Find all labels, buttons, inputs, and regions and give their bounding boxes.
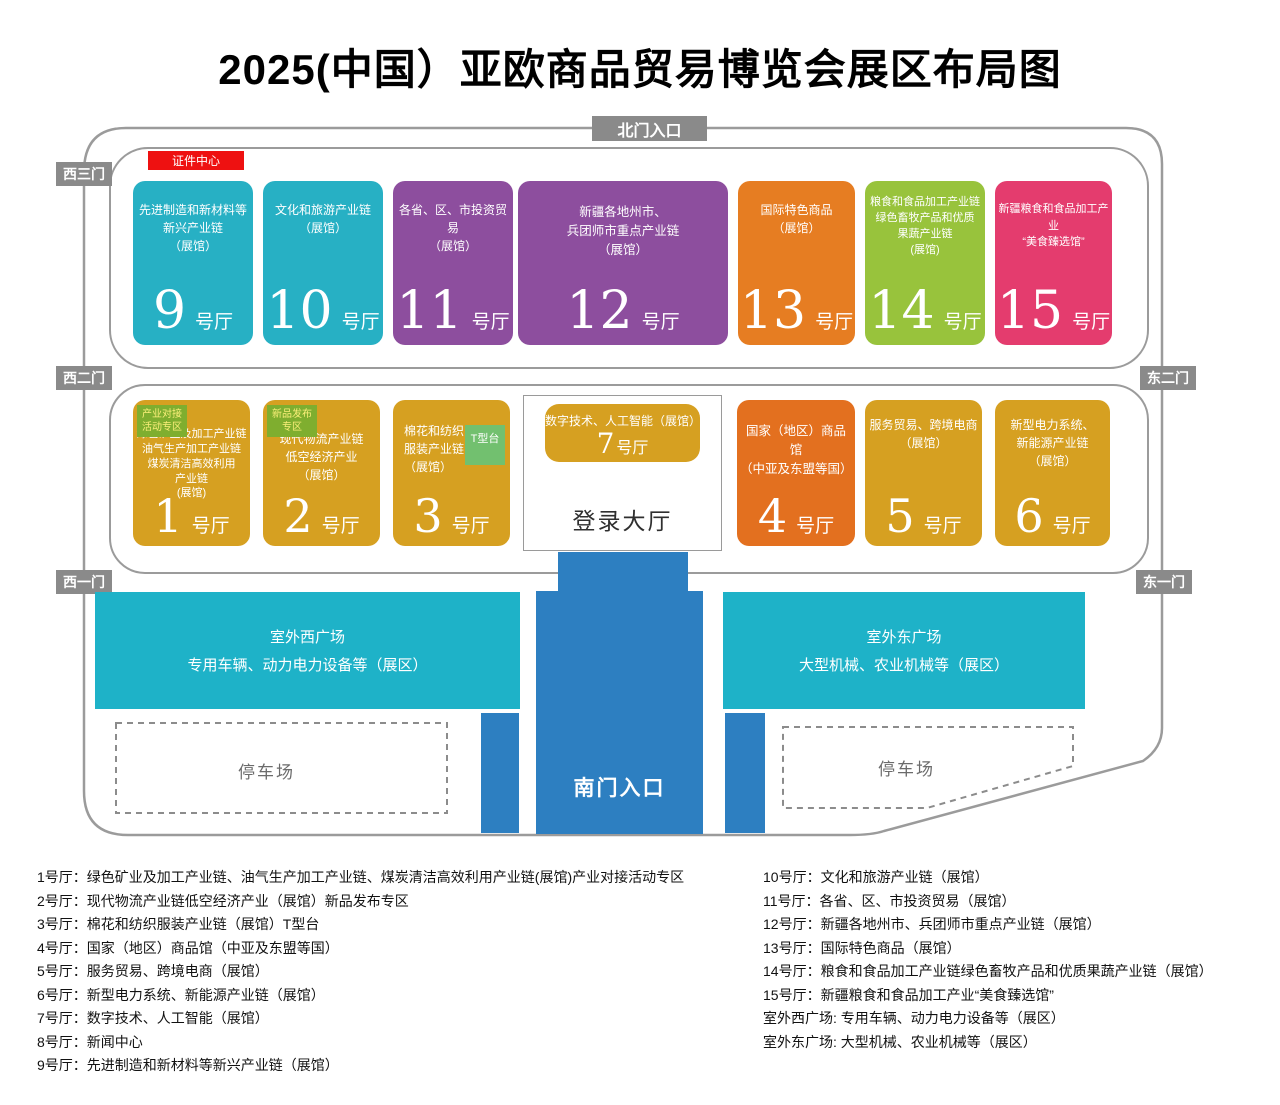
- hall-6-desc: 新型电力系统、 新能源产业链 （展馆）: [995, 400, 1110, 470]
- hall-9: 先进制造和新材料等 新兴产业链 （展馆） 9号厅: [133, 181, 253, 345]
- hall-6-unit: 号厅: [1053, 516, 1091, 537]
- hall-1: 产业对接 活动专区 绿色矿业及加工产业链 油气生产加工产业链 煤炭清洁高效利用 …: [133, 400, 250, 546]
- legend-item: 2号厅：现代物流产业链低空经济产业（展馆）新品发布专区: [37, 890, 759, 914]
- hall-12-number: 12号厅: [518, 285, 728, 337]
- hall-2-new-product-badge: 新品发布 专区: [267, 405, 317, 437]
- hall-1-number: 1号厅: [133, 493, 250, 539]
- hall-6: 新型电力系统、 新能源产业链 （展馆） 6号厅: [995, 400, 1110, 546]
- legend-item: 1号厅：绿色矿业及加工产业链、油气生产加工产业链、煤炭清洁高效利用产业链(展馆)…: [37, 866, 759, 890]
- hall-2-unit: 号厅: [322, 516, 360, 537]
- gate-west-1: 西一门: [56, 570, 112, 594]
- hall-14-desc: 粮食和食品加工产业链 绿色畜牧产品和优质 果蔬产业链 (展馆): [865, 181, 985, 259]
- hall-12: 新疆各地州市、 兵团师市重点产业链 （展馆） 12号厅: [518, 181, 728, 345]
- legend-item: 11号厅：各省、区、市投资贸易（展馆）: [763, 890, 1247, 914]
- hall-11: 各省、区、市投资贸易 （展馆） 11号厅: [393, 181, 513, 345]
- hall-15-unit: 号厅: [1072, 312, 1110, 333]
- hall-1-unit: 号厅: [192, 516, 230, 537]
- gate-north-entrance: 北门入口: [592, 116, 707, 141]
- east-plaza-name: 室外东广场: [866, 626, 941, 647]
- hall-2-num: 2: [283, 489, 312, 543]
- west-plaza-desc: 专用车辆、动力电力设备等（展区）: [187, 654, 427, 675]
- hall-9-number: 9号厅: [133, 285, 253, 337]
- legend-item: 15号厅：新疆粮食和食品加工产业“美食臻选馆”: [763, 984, 1247, 1008]
- hall-3-number: 3号厅: [393, 493, 510, 539]
- hall-7-unit: 号厅: [616, 440, 648, 457]
- hall-12-num: 12: [566, 281, 632, 341]
- east-parking-label: 停车场: [878, 755, 935, 780]
- hall-5-num: 5: [885, 489, 914, 543]
- hall-4-number: 4号厅: [737, 493, 855, 539]
- hall-10-unit: 号厅: [342, 312, 380, 333]
- hall-7-desc: 数字技术、人工智能（展馆）: [545, 412, 700, 429]
- hall-7-num: 7: [597, 427, 615, 460]
- hall-1-activity-zone-badge: 产业对接 活动专区: [137, 405, 187, 437]
- hall-3: T型台 棉花和纺织 服装产业链 （展馆） 3号厅: [393, 400, 510, 546]
- hall-11-desc: 各省、区、市投资贸易 （展馆）: [393, 181, 513, 255]
- hall-14-unit: 号厅: [944, 312, 982, 333]
- west-corridor-strip: [481, 713, 519, 833]
- hall-9-unit: 号厅: [195, 312, 233, 333]
- credential-center-label: 证件中心: [148, 151, 244, 170]
- south-corridor-neck: [558, 552, 688, 591]
- hall-15-number: 15号厅: [995, 285, 1112, 337]
- gate-south-entrance: 南门入口: [536, 772, 703, 802]
- gate-west-2: 西二门: [56, 366, 112, 390]
- legend-item: 3号厅：棉花和纺织服装产业链（展馆）T型台: [37, 913, 759, 937]
- hall-15: 新疆粮食和食品加工产业 “美食臻选馆” 15号厅: [995, 181, 1112, 345]
- east-outdoor-plaza: 室外东广场 大型机械、农业机械等（展区）: [723, 592, 1085, 709]
- legend-right-column: 10号厅：文化和旅游产业链（展馆） 11号厅：各省、区、市投资贸易（展馆） 12…: [763, 866, 1247, 1054]
- hall-10: 文化和旅游产业链 （展馆） 10号厅: [263, 181, 383, 345]
- hall-4-desc: 国家（地区）商品馆 （中亚及东盟等国）: [737, 400, 855, 478]
- legend-item: 12号厅：新疆各地州市、兵团师市重点产业链（展馆）: [763, 913, 1247, 937]
- expo-layout-map: 2025(中国）亚欧商品贸易博览会展区布局图 北门入口 西三门 西二门 西一门 …: [0, 0, 1280, 1105]
- hall-7-number: 7号厅: [545, 430, 700, 458]
- legend-item: 5号厅：服务贸易、跨境电商（展馆）: [37, 960, 759, 984]
- east-corridor-strip: [725, 713, 765, 833]
- legend-left-column: 1号厅：绿色矿业及加工产业链、油气生产加工产业链、煤炭清洁高效利用产业链(展馆)…: [37, 866, 759, 1078]
- hall-4-unit: 号厅: [796, 516, 834, 537]
- hall-3-t-stage-badge: T型台: [465, 425, 505, 465]
- legend-item: 14号厅：粮食和食品加工产业链绿色畜牧产品和优质果蔬产业链（展馆）: [763, 960, 1247, 984]
- hall-11-number: 11号厅: [393, 285, 513, 337]
- east-plaza-desc: 大型机械、农业机械等（展区）: [799, 654, 1009, 675]
- hall-15-desc: 新疆粮食和食品加工产业 “美食臻选馆”: [995, 181, 1112, 251]
- hall-13-desc: 国际特色商品 （展馆）: [738, 181, 855, 237]
- legend-item: 室外西广场: 专用车辆、动力电力设备等（展区）: [763, 1007, 1247, 1031]
- hall-13-number: 13号厅: [738, 285, 855, 337]
- hall-12-unit: 号厅: [642, 312, 680, 333]
- hall-9-desc: 先进制造和新材料等 新兴产业链 （展馆）: [133, 181, 253, 255]
- hall-10-number: 10号厅: [263, 285, 383, 337]
- hall-13-num: 13: [740, 281, 806, 341]
- legend-item: 4号厅：国家（地区）商品馆（中亚及东盟等国）: [37, 937, 759, 961]
- hall-3-unit: 号厅: [452, 516, 490, 537]
- legend-item: 10号厅：文化和旅游产业链（展馆）: [763, 866, 1247, 890]
- hall-7: 数字技术、人工智能（展馆） 7号厅: [545, 404, 700, 462]
- hall-6-num: 6: [1014, 489, 1043, 543]
- hall-13-unit: 号厅: [815, 312, 853, 333]
- hall-13: 国际特色商品 （展馆） 13号厅: [738, 181, 855, 345]
- legend-item: 室外东广场: 大型机械、农业机械等（展区）: [763, 1031, 1247, 1055]
- registration-hall: 数字技术、人工智能（展馆） 7号厅 登录大厅: [523, 395, 722, 551]
- west-plaza-name: 室外西广场: [270, 626, 345, 647]
- hall-5-number: 5号厅: [865, 493, 982, 539]
- gate-west-3: 西三门: [56, 162, 112, 186]
- west-outdoor-plaza: 室外西广场 专用车辆、动力电力设备等（展区）: [95, 592, 520, 709]
- hall-11-unit: 号厅: [472, 312, 510, 333]
- hall-5-desc: 服务贸易、跨境电商 （展馆）: [865, 400, 982, 452]
- hall-14-number: 14号厅: [865, 285, 985, 337]
- gate-east-2: 东二门: [1140, 366, 1196, 390]
- hall-12-desc: 新疆各地州市、 兵团师市重点产业链 （展馆）: [518, 181, 728, 259]
- legend-item: 8号厅：新闻中心: [37, 1031, 759, 1055]
- hall-9-num: 9: [153, 281, 186, 341]
- hall-6-number: 6号厅: [995, 493, 1110, 539]
- hall-3-num: 3: [413, 489, 442, 543]
- hall-2: 新品发布 专区 现代物流产业链 低空经济产业 （展馆） 2号厅: [263, 400, 380, 546]
- hall-15-num: 15: [997, 281, 1063, 341]
- hall-5: 服务贸易、跨境电商 （展馆） 5号厅: [865, 400, 982, 546]
- legend-item: 9号厅：先进制造和新材料等新兴产业链（展馆）: [37, 1054, 759, 1078]
- hall-4: 国家（地区）商品馆 （中亚及东盟等国） 4号厅: [737, 400, 855, 546]
- hall-2-number: 2号厅: [263, 493, 380, 539]
- hall-5-unit: 号厅: [924, 516, 962, 537]
- legend-item: 7号厅：数字技术、人工智能（展馆）: [37, 1007, 759, 1031]
- registration-hall-label: 登录大厅: [524, 502, 721, 536]
- hall-11-num: 11: [396, 281, 462, 341]
- hall-14-num: 14: [868, 281, 934, 341]
- hall-10-desc: 文化和旅游产业链 （展馆）: [263, 181, 383, 237]
- legend-item: 6号厅：新型电力系统、新能源产业链（展馆）: [37, 984, 759, 1008]
- west-parking-label: 停车场: [238, 758, 295, 783]
- hall-1-num: 1: [153, 489, 182, 543]
- legend-item: 13号厅：国际特色商品（展馆）: [763, 937, 1247, 961]
- hall-10-num: 10: [266, 281, 332, 341]
- hall-4-num: 4: [758, 489, 787, 543]
- hall-14: 粮食和食品加工产业链 绿色畜牧产品和优质 果蔬产业链 (展馆) 14号厅: [865, 181, 985, 345]
- gate-east-1: 东一门: [1136, 570, 1192, 594]
